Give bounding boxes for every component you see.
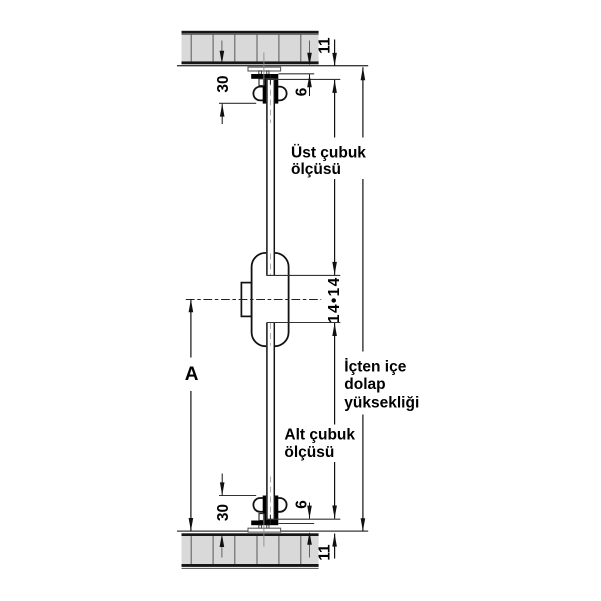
svg-text:ölçüsü: ölçüsü [291, 161, 341, 178]
svg-text:yüksekliği: yüksekliği [344, 395, 419, 412]
svg-text:14•14: 14•14 [326, 276, 343, 323]
svg-text:11: 11 [316, 37, 333, 54]
svg-text:Alt çubuk: Alt çubuk [284, 427, 355, 444]
svg-text:30: 30 [215, 504, 232, 521]
svg-text:dolap: dolap [344, 376, 385, 393]
svg-text:6: 6 [293, 500, 310, 509]
svg-text:İçten içe: İçten içe [344, 358, 406, 375]
svg-text:Üst çubuk: Üst çubuk [291, 145, 366, 162]
svg-text:A: A [185, 364, 199, 385]
svg-text:11: 11 [316, 544, 333, 561]
svg-text:6: 6 [293, 88, 310, 97]
svg-text:ölçüsü: ölçüsü [284, 444, 334, 461]
svg-text:30: 30 [215, 75, 232, 92]
